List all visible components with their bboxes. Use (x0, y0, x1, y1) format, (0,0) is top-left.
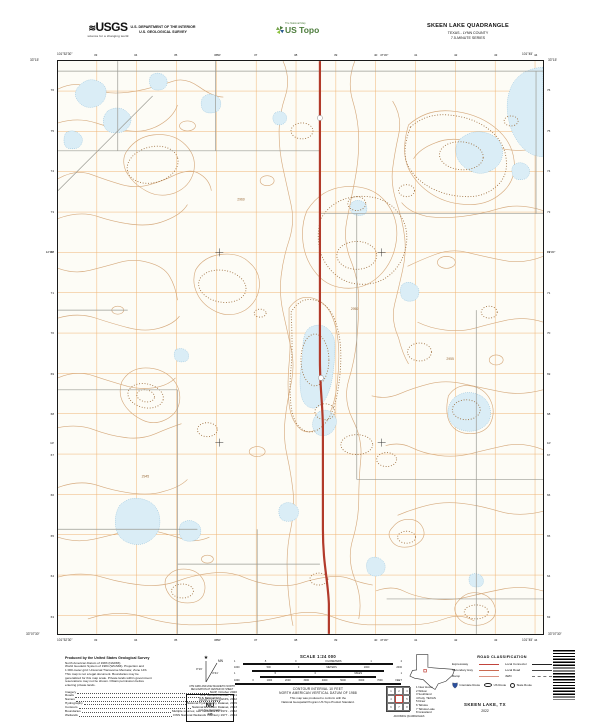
grid-tick-label: 34 (134, 53, 137, 57)
grid-tick-label: 42 (454, 53, 457, 57)
grid-tick-label: 39 (334, 638, 337, 642)
grid-tick-label: 38 (294, 638, 297, 642)
usng-zone: 14S (187, 712, 233, 716)
grid-tick-label: 67 (547, 453, 550, 457)
quad-subtitle: TEXAS - LYNN COUNTY (368, 31, 568, 35)
grid-tick-label: 71 (40, 291, 54, 295)
corner-nw-lon: 101°52'30" (57, 52, 72, 56)
grid-tick-label: 50' (217, 638, 221, 642)
scale-bar-row: 100001000200030004000500060007000FEET (232, 680, 404, 685)
quad-location-marker (424, 669, 427, 672)
grid-tick-label: 47'30" (380, 53, 388, 57)
grid-tick-label: 33 (94, 53, 97, 57)
standard-note-2: National Geospatial Program US Topo Prod… (232, 701, 404, 705)
scale-block: SCALE 1:24 000 1.50KILOMETERS1210005000M… (232, 654, 404, 704)
grid-tick-label: 12'30" (547, 250, 555, 254)
usgs-wave-icon: ≋ (88, 23, 95, 33)
ustopo-logo: The National Map US Topo (276, 22, 336, 35)
road-class-sample-line (479, 670, 499, 671)
grid-tick-label: 75 (547, 129, 550, 133)
department-heading: U.S. DEPARTMENT OF THE INTERIOR U.S. GEO… (108, 25, 218, 34)
svg-text:0°16': 0°16' (196, 667, 203, 671)
adjoining-grid: 12345678 (386, 686, 410, 712)
usng-subtitle: 100,000-m Square ID (187, 700, 233, 702)
corner-sw-lat: 33°07'30" (26, 632, 40, 636)
svg-text:★: ★ (204, 655, 209, 661)
grid-tick-label: 35 (174, 53, 177, 57)
us-route-shield-icon (484, 683, 492, 688)
grid-tick-label: 67 (40, 453, 54, 457)
adjoining-grid-cell: 6 (387, 703, 395, 711)
grid-tick-label: 44 (534, 638, 537, 642)
grid-tick-label: 50' (217, 53, 221, 57)
road-class-right-column: Local ConnectorLocal Road4WD (505, 661, 552, 679)
grid-tick-label: 41 (414, 638, 417, 642)
grid-tick-label: 10' (40, 441, 54, 445)
grid-tick-label: 37 (254, 638, 257, 642)
road-class-row: Ramp (452, 673, 499, 679)
grid-tick-label: 34 (134, 638, 137, 642)
grid-tick-label: 76 (40, 88, 54, 92)
grid-tick-label: 66 (40, 493, 54, 497)
road-class-sample-line (532, 664, 552, 665)
grid-tick-label: 65 (547, 534, 550, 538)
grid-tick-label: 68 (40, 412, 54, 416)
spot-elevation-label: 2955 (446, 357, 454, 361)
grid-tick-label: 74 (547, 169, 550, 173)
adjoining-grid-cell: 2 (395, 687, 403, 695)
interstate-route-label: Interstate Route (460, 683, 481, 687)
usgs-tagline: science for a changing world (76, 34, 140, 38)
ustopo-pinwheel-icon (276, 26, 284, 34)
adjoining-grid-cell: 7 (395, 703, 403, 711)
grid-tick-label: 43 (494, 53, 497, 57)
us-route-label: US Route (494, 683, 507, 687)
scale-bar-row: 10005000METERS10002000 (232, 667, 404, 672)
grid-tick-label: 69 (40, 372, 54, 376)
lakes (64, 67, 543, 587)
grid-tick-label: 41 (414, 53, 417, 57)
usng-square-id: NU (187, 703, 233, 709)
grid-tick-label: 71 (547, 291, 550, 295)
adjoining-grid-cell: 3 (403, 687, 411, 695)
grid-tick-label: 63 (40, 615, 54, 619)
usgs-topo-sheet: ≋USGS science for a changing world U.S. … (0, 0, 600, 725)
scale-bar-row: 1.50KILOMETERS12 (232, 661, 404, 666)
grid-tick-label: 40 (374, 53, 377, 57)
road-class-row: 4WD (505, 673, 552, 679)
sheet-year: 2022 (410, 709, 560, 713)
state-route-shield-icon (510, 683, 515, 688)
grid-tick-label: 12'30" (40, 250, 54, 254)
grid-tick-label: 47'30" (380, 638, 388, 642)
grid-tick-label: 37 (254, 53, 257, 57)
adjoining-caption: ADJOINING QUADRANGLES (386, 715, 432, 719)
road-class-left-column: ExpresswaySecondary HwyRamp (452, 661, 499, 679)
ustopo-logo-text: US Topo (285, 25, 319, 35)
vertical-datum-note: NORTH AMERICAN VERTICAL DATUM OF 1988 (232, 691, 404, 695)
map-area: 2950296029452955 (57, 60, 544, 635)
sheet-title: SKEEN LAKE, TX (410, 702, 560, 707)
grid-tick-label: 66 (547, 493, 550, 497)
quad-title: SKEEN LAKE QUADRANGLE (368, 23, 568, 29)
grid-tick-label: 63 (547, 615, 550, 619)
graticule-cross-icon (215, 248, 385, 446)
corner-se-lon: 101°45' (522, 638, 533, 642)
grid-tick-label: 69 (547, 372, 550, 376)
grid-tick-label: 65 (40, 534, 54, 538)
grid-tick-label: 35 (174, 638, 177, 642)
adjoining-grid-center (395, 695, 403, 703)
road-classification: ROAD CLASSIFICATION ExpresswaySecondary … (452, 655, 552, 689)
interstate-shield-icon (452, 682, 458, 689)
sheet-identifier: SKEEN LAKE, TX 2022 (410, 702, 560, 713)
dept-line-2: U.S. GEOLOGICAL SURVEY (108, 30, 218, 35)
grid-tick-label: 42 (454, 638, 457, 642)
grid-tick-label: 10' (547, 441, 551, 445)
corner-ne-lon: 101°45' (522, 52, 533, 56)
grid-tick-label: 44 (534, 53, 537, 57)
grid-tick-label: 75 (40, 129, 54, 133)
adjoining-grid-cell: 4 (387, 695, 395, 703)
declination-caption-2: DECLINATION AT CENTER OF SHEET (186, 688, 238, 691)
state-route-label: State Route (517, 683, 532, 687)
svg-text:4°41': 4°41' (212, 671, 219, 675)
quad-series: 7.5-MINUTE SERIES (368, 36, 568, 40)
route-shield-icon (317, 115, 322, 120)
north-arrows-icon: ★ MN 0°16' 4°41' (192, 654, 226, 684)
usng-box: U.S. National Grid 100,000-m Square ID N… (186, 694, 234, 722)
grid-tick-label: 64 (547, 574, 550, 578)
grid-tick-label: 73 (40, 210, 54, 214)
spot-elevation-label: 2960 (237, 198, 245, 202)
road-class-sample-line (479, 676, 499, 677)
corner-sw-lon: 101°52'30" (57, 638, 72, 642)
topo-map-art: 2950296029452955 (58, 61, 543, 634)
metadata-barcode (553, 650, 575, 700)
grid-tick-label: 70 (40, 331, 54, 335)
grid-tick-label: 38 (294, 53, 297, 57)
grid-tick-label: 73 (547, 210, 550, 214)
scale-bars: 1.50KILOMETERS1210005000METERS100020001.… (232, 661, 404, 685)
scale-title: SCALE 1:24 000 (232, 654, 404, 659)
adjoining-grid-cell: 1 (387, 687, 395, 695)
road-class-sample-line (532, 670, 552, 671)
grid-tick-label: 33 (94, 638, 97, 642)
scale-bar-row: 1.50MILES1 (232, 673, 404, 678)
grid-tick-label: 76 (547, 88, 550, 92)
road-class-title: ROAD CLASSIFICATION (452, 655, 552, 659)
road-class-sample-line (532, 676, 552, 677)
grid-tick-label: 40 (374, 638, 377, 642)
grid-tick-label: 70 (547, 331, 550, 335)
grid-tick-label: 39 (334, 53, 337, 57)
corner-nw-lat: 33°15' (30, 58, 39, 62)
spot-elevation-label: 2950 (351, 307, 359, 311)
quad-title-block: SKEEN LAKE QUADRANGLE TEXAS - LYNN COUNT… (368, 23, 568, 40)
road-class-sample-line (479, 664, 499, 665)
route-shield-icon (318, 375, 323, 380)
grid-tick-label: 64 (40, 574, 54, 578)
declination-diagram: ★ MN 0°16' 4°41' UTM GRID AND 2022 MAGNE… (186, 654, 238, 691)
grid-tick-label: 74 (40, 169, 54, 173)
spot-elevation-label: 2945 (142, 474, 150, 478)
svg-text:MN: MN (218, 659, 224, 663)
corner-se-lat: 33°07'30" (548, 632, 562, 636)
grid-tick-label: 68 (547, 412, 550, 416)
corner-ne-lat: 33°15' (548, 58, 557, 62)
grid-tick-label: 43 (494, 638, 497, 642)
